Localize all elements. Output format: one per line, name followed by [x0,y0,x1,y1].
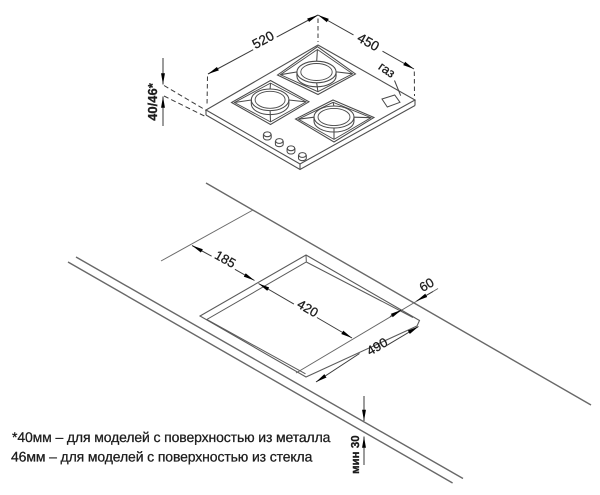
svg-text:46мм – для моделей с поверхно: 46мм – для моделей с поверхностью из сте… [11,449,313,465]
svg-text:мин 30: мин 30 [350,435,362,474]
svg-text:*40мм – для моделей с поверхн: *40мм – для моделей с поверхностью из ме… [12,429,331,445]
svg-text:40/46*: 40/46* [145,82,160,121]
